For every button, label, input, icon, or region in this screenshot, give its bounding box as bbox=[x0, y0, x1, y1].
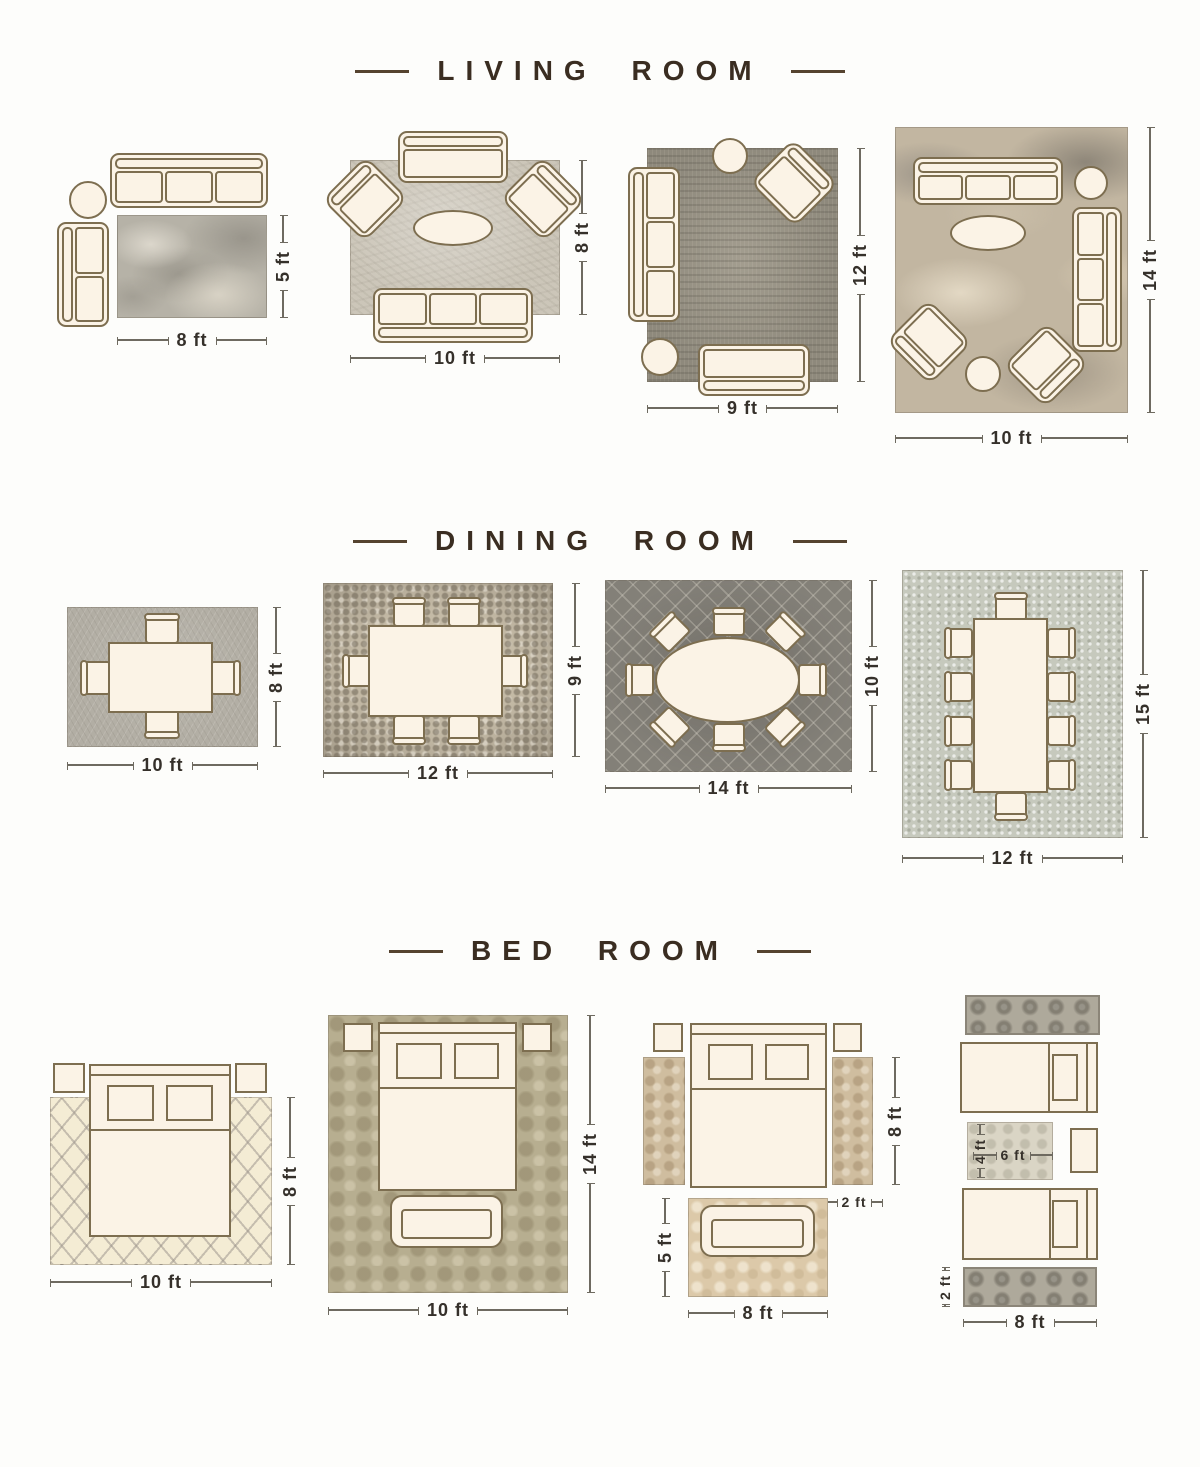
height-dimension: 8 ft bbox=[280, 1097, 300, 1265]
round-side-table bbox=[965, 356, 1001, 392]
section-title-text: BED ROOM bbox=[471, 935, 729, 967]
runner-width-dimension: 2 ft bbox=[935, 1267, 955, 1307]
runner-rug bbox=[963, 1267, 1097, 1307]
title-dash-left bbox=[353, 540, 407, 543]
height-dimension: 15 ft bbox=[1133, 570, 1153, 838]
width-dimension: 12 ft bbox=[323, 763, 553, 783]
height-dimension: 14 ft bbox=[1140, 127, 1160, 413]
rug-width-dimension: 6 ft bbox=[973, 1145, 1053, 1165]
dining-chair bbox=[713, 723, 745, 749]
bed bbox=[690, 1023, 827, 1188]
dining-chair bbox=[210, 661, 238, 695]
pillows bbox=[91, 1076, 229, 1121]
rug-height-dimension: 5 ft bbox=[655, 1198, 675, 1297]
dining-chair bbox=[1047, 672, 1073, 702]
dining-layout-12x9: 12 ft 9 ft bbox=[315, 565, 590, 790]
section-title-text: DINING ROOM bbox=[435, 525, 765, 557]
pillows bbox=[692, 1035, 825, 1080]
nightstand bbox=[1070, 1128, 1098, 1173]
bed-layout-10x8: 10 ft 8 ft bbox=[40, 1040, 305, 1295]
loveseat bbox=[698, 344, 810, 396]
width-dimension: 14 ft bbox=[605, 778, 852, 798]
dining-chair bbox=[145, 616, 179, 644]
height-dimension: 5 ft bbox=[273, 215, 293, 318]
dining-chair bbox=[947, 716, 973, 746]
nightstand bbox=[522, 1023, 552, 1052]
bed-room-title: BED ROOM bbox=[0, 935, 1200, 967]
sofa bbox=[628, 167, 680, 322]
oval-dining-table bbox=[655, 637, 800, 723]
dining-chair bbox=[1047, 716, 1073, 746]
dining-chair bbox=[393, 600, 425, 627]
runner-rug bbox=[965, 995, 1100, 1035]
dining-chair bbox=[628, 664, 654, 696]
bed bbox=[378, 1022, 517, 1191]
width-dimension: 10 ft bbox=[895, 428, 1128, 448]
rug-size-guide: LIVING ROOM 8 ft 5 ft bbox=[0, 0, 1200, 1467]
width-dimension: 8 ft bbox=[117, 330, 267, 350]
title-dash-left bbox=[389, 950, 443, 953]
rug bbox=[117, 215, 267, 318]
dining-chair bbox=[947, 672, 973, 702]
dining-chair bbox=[947, 760, 973, 790]
runner-length-dimension: 8 ft bbox=[963, 1312, 1097, 1332]
height-dimension: 10 ft bbox=[862, 580, 882, 772]
bed bbox=[962, 1188, 1098, 1260]
sofa bbox=[373, 288, 533, 343]
runner-width-dimension: 2 ft bbox=[825, 1192, 883, 1212]
sofa bbox=[110, 153, 268, 208]
bed-layout-runners: 8 ft 2 ft 5 ft 8 ft bbox=[635, 1010, 905, 1325]
pillow bbox=[1052, 1054, 1078, 1101]
nightstand bbox=[833, 1023, 862, 1052]
dining-chair bbox=[448, 715, 480, 742]
dining-chair bbox=[947, 628, 973, 658]
bench bbox=[700, 1205, 815, 1257]
height-dimension: 9 ft bbox=[565, 583, 585, 757]
width-dimension: 9 ft bbox=[647, 398, 838, 418]
dining-chair bbox=[393, 715, 425, 742]
bed-layout-10x14: 10 ft 14 ft bbox=[320, 1005, 600, 1320]
height-dimension: 12 ft bbox=[850, 148, 870, 382]
living-layout-10x8: 10 ft 8 ft bbox=[330, 120, 600, 370]
dining-layout-14x10: 14 ft 10 ft bbox=[595, 565, 880, 805]
bed bbox=[960, 1042, 1098, 1113]
dining-room-title: DINING ROOM bbox=[0, 525, 1200, 557]
rug-width-dimension: 8 ft bbox=[688, 1303, 828, 1323]
bed-layout-twin: 4 ft 6 ft 2 ft 8 ft bbox=[925, 985, 1195, 1335]
width-dimension: 10 ft bbox=[350, 348, 560, 368]
title-dash-right bbox=[757, 950, 811, 953]
pillow bbox=[1052, 1200, 1078, 1248]
round-side-table bbox=[1074, 166, 1108, 200]
dining-chair bbox=[448, 600, 480, 627]
dining-table bbox=[368, 625, 503, 717]
round-side-table bbox=[641, 338, 679, 376]
width-dimension: 10 ft bbox=[67, 755, 258, 775]
dining-table bbox=[973, 618, 1048, 793]
round-side-table bbox=[712, 138, 748, 174]
dining-chair bbox=[798, 664, 824, 696]
oval-coffee-table bbox=[413, 210, 493, 246]
width-dimension: 12 ft bbox=[902, 848, 1123, 868]
living-layout-9x12: 9 ft 12 ft bbox=[615, 130, 880, 420]
living-room-title: LIVING ROOM bbox=[0, 55, 1200, 87]
bed bbox=[89, 1064, 231, 1237]
width-dimension: 10 ft bbox=[50, 1272, 272, 1292]
loveseat bbox=[57, 222, 109, 327]
dining-layout-12x15: 12 ft 15 ft bbox=[895, 555, 1185, 870]
bench bbox=[390, 1195, 503, 1248]
runner-rug bbox=[643, 1057, 685, 1185]
title-dash-left bbox=[355, 70, 409, 73]
title-dash-right bbox=[791, 70, 845, 73]
round-side-table bbox=[69, 181, 107, 219]
living-layout-8x5: 8 ft 5 ft bbox=[50, 130, 300, 355]
dining-layout-10x8: 10 ft 8 ft bbox=[50, 595, 300, 790]
runner-rug bbox=[832, 1057, 873, 1185]
nightstand bbox=[53, 1063, 85, 1093]
dining-chair bbox=[713, 610, 745, 636]
loveseat bbox=[398, 131, 508, 183]
title-dash-right bbox=[793, 540, 847, 543]
living-layout-10x14: 10 ft 14 ft bbox=[890, 115, 1170, 445]
oval-coffee-table bbox=[950, 215, 1026, 251]
dining-chair bbox=[1047, 760, 1073, 790]
height-dimension: 8 ft bbox=[572, 160, 592, 315]
nightstand bbox=[343, 1023, 373, 1052]
height-dimension: 8 ft bbox=[266, 607, 286, 747]
height-dimension: 14 ft bbox=[580, 1015, 600, 1293]
nightstand bbox=[653, 1023, 683, 1052]
section-title-text: LIVING ROOM bbox=[437, 55, 762, 87]
sofa bbox=[913, 157, 1063, 205]
runner-length-dimension: 8 ft bbox=[885, 1057, 905, 1185]
dining-chair bbox=[83, 661, 111, 695]
width-dimension: 10 ft bbox=[328, 1300, 568, 1320]
dining-table bbox=[108, 642, 213, 713]
sofa bbox=[1072, 207, 1122, 352]
nightstand bbox=[235, 1063, 267, 1093]
dining-chair bbox=[995, 792, 1027, 818]
pillows bbox=[380, 1034, 515, 1079]
dining-chair bbox=[1047, 628, 1073, 658]
